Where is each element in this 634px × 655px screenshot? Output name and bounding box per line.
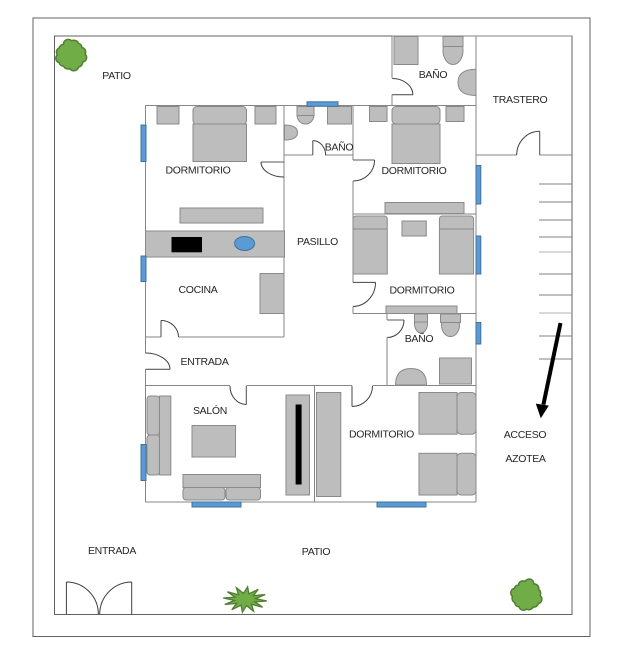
svg-text:DORMITORIO: DORMITORIO [389, 285, 454, 297]
svg-text:ENTRADA: ENTRADA [88, 545, 136, 557]
svg-text:DORMITORIO: DORMITORIO [381, 165, 446, 177]
svg-text:PATIO: PATIO [102, 70, 131, 82]
svg-text:DORMITORIO: DORMITORIO [349, 429, 414, 441]
svg-text:PATIO: PATIO [302, 546, 331, 558]
svg-text:BAÑO: BAÑO [325, 141, 354, 154]
svg-text:TRASTERO: TRASTERO [493, 94, 548, 106]
svg-text:SALÓN: SALÓN [193, 404, 227, 417]
svg-text:AZOTEA: AZOTEA [505, 453, 546, 465]
svg-text:COCINA: COCINA [178, 284, 217, 296]
svg-text:ENTRADA: ENTRADA [180, 356, 228, 368]
svg-text:PASILLO: PASILLO [297, 236, 338, 248]
svg-text:BAÑO: BAÑO [419, 68, 448, 81]
svg-text:DORMITORIO: DORMITORIO [165, 165, 230, 177]
svg-text:ACCESO: ACCESO [504, 429, 547, 441]
svg-text:BAÑO: BAÑO [405, 332, 434, 345]
